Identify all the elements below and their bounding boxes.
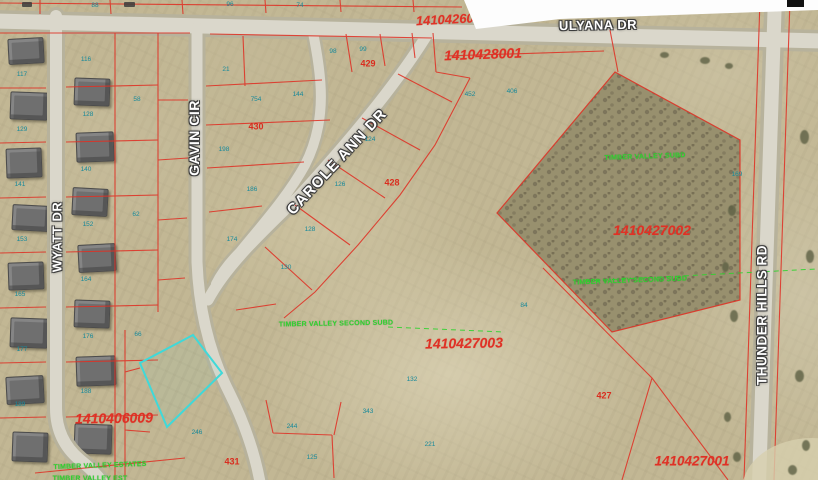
road-label-thunder-hills-rd: THUNDER HILLS RD xyxy=(755,245,769,385)
lot-number-label: 126 xyxy=(335,182,346,189)
lot-number-label: 96 xyxy=(226,2,233,9)
lot-number-label: 188 xyxy=(81,389,92,396)
road-label-wyatt-dr: WYATT DR xyxy=(51,202,64,272)
lot-number-label: 21 xyxy=(222,67,229,74)
lot-number-label: 198 xyxy=(219,147,230,154)
lot-number-label: 88 xyxy=(91,3,98,10)
lot-number-label: 74 xyxy=(296,3,303,10)
parcel-id-label: 1410406009 xyxy=(75,410,153,425)
lot-number-label: 452 xyxy=(465,92,476,99)
road-label-ulyana-dr: ULYANA DR xyxy=(559,18,637,32)
lot-number-label: 164 xyxy=(81,277,92,284)
lot-number-label: 98 xyxy=(329,49,336,56)
lot-number-label: 221 xyxy=(425,442,436,449)
lot-number-label: 153 xyxy=(17,237,28,244)
lot-number-label: 99 xyxy=(359,47,366,54)
lot-number-label: 129 xyxy=(17,127,28,134)
lot-number-label: 125 xyxy=(307,455,318,462)
lot-number-label: 124 xyxy=(365,137,376,144)
lot-number-label: 130 xyxy=(281,265,292,272)
lot-number-label: 186 xyxy=(247,187,258,194)
lot-number-label: 84 xyxy=(520,303,527,310)
red-lot-number-label: 428 xyxy=(384,179,399,188)
lot-number-label: 174 xyxy=(227,237,238,244)
black-rectangle-marker xyxy=(787,0,804,7)
labels-layer: ULYANA DR WYATT DR GAVIN CIR CAROLE ANN … xyxy=(0,0,818,480)
lot-number-label: 141 xyxy=(15,182,26,189)
red-lot-number-label: 431 xyxy=(224,458,239,467)
lot-number-label: 58 xyxy=(133,97,140,104)
lot-number-label: 128 xyxy=(83,112,94,119)
subdivision-label: TIMBER VALLEY SUBD xyxy=(604,152,685,162)
parcel-id-label: 1410427003 xyxy=(425,335,503,350)
subdivision-label: TIMBER VALLEY EST xyxy=(53,476,128,480)
road-label-gavin-cir: GAVIN CIR xyxy=(187,100,201,176)
lot-number-label: 140 xyxy=(81,167,92,174)
lot-number-label: 246 xyxy=(192,430,203,437)
map-canvas[interactable]: ULYANA DR WYATT DR GAVIN CIR CAROLE ANN … xyxy=(0,0,818,480)
lot-number-label: 176 xyxy=(83,334,94,341)
lot-number-label: 169 xyxy=(732,172,743,179)
parcel-id-label: 1410427002 xyxy=(613,223,691,237)
lot-number-label: 116 xyxy=(81,57,91,64)
lot-number-label: 406 xyxy=(507,89,518,96)
red-lot-number-label: 427 xyxy=(596,392,611,401)
lot-number-label: 117 xyxy=(17,72,27,79)
subdivision-label: TIMBER VALLEY SECOND SUBD xyxy=(279,320,394,329)
lot-number-label: 244 xyxy=(287,424,298,431)
road-label-carole-ann-dr: CAROLE ANN DR xyxy=(284,106,389,217)
lot-number-label: 189 xyxy=(15,402,26,409)
lot-number-label: 132 xyxy=(407,377,418,384)
lot-number-label: 152 xyxy=(83,222,94,229)
lot-number-label: 128 xyxy=(305,227,316,234)
red-lot-number-label: 429 xyxy=(360,60,375,69)
lot-number-label: 177 xyxy=(17,347,28,354)
parcel-id-label: 1410427001 xyxy=(654,454,729,468)
parcel-id-label: 1410428001 xyxy=(444,46,522,63)
red-lot-number-label: 430 xyxy=(248,123,263,132)
subdivision-label: TIMBER VALLEY ESTATES xyxy=(53,461,146,471)
lot-number-label: 144 xyxy=(293,92,304,99)
subdivision-label: TIMBER VALLEY SECOND SUBD xyxy=(573,276,688,287)
lot-number-label: 66 xyxy=(134,332,141,339)
lot-number-label: 62 xyxy=(132,212,139,219)
lot-number-label: 343 xyxy=(363,409,374,416)
lot-number-label: 754 xyxy=(251,97,262,104)
lot-number-label: 165 xyxy=(15,292,26,299)
